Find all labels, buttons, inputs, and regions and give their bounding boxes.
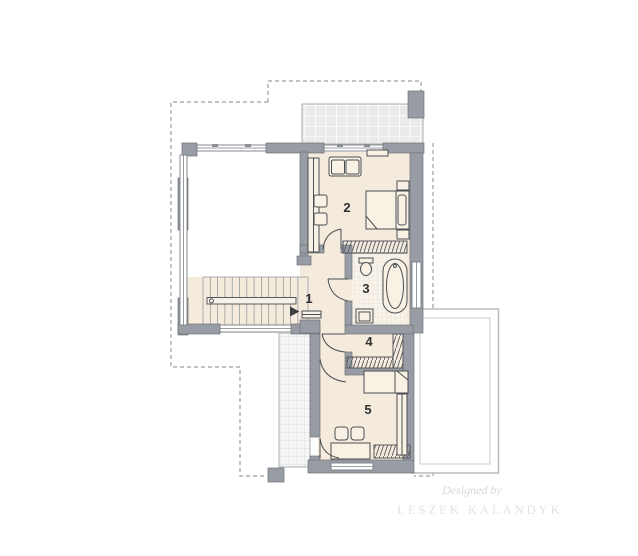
window-bottom-left-wing xyxy=(220,325,291,332)
wall-bottom-left-a xyxy=(178,324,220,334)
sink-icon xyxy=(356,309,373,323)
wardrobe-bedroom5-icon xyxy=(397,394,407,455)
closet-bedroom2 xyxy=(343,241,407,253)
watermark: Designed by LESZEK KALANDYK xyxy=(397,483,562,517)
wall-lower-left-a xyxy=(310,334,320,437)
closet-wardrobe-right xyxy=(393,334,403,368)
window-left-wall xyxy=(180,155,187,325)
wall-void-right-cap xyxy=(297,256,311,265)
wall-top-center xyxy=(266,143,324,153)
nightstand-2-icon xyxy=(397,230,409,239)
window-bedroom5-bottom xyxy=(331,463,373,470)
bathtub-icon xyxy=(383,259,407,313)
wall-corner-top-left xyxy=(182,143,197,156)
sofa-icon xyxy=(329,157,361,176)
chair-1-icon xyxy=(335,427,348,440)
stair-rail xyxy=(207,298,296,305)
closet-wardrobe-bottom xyxy=(347,357,393,368)
floor-plan-page: 1 2 3 4 5 Designed by LESZEK KALANDYK xyxy=(0,0,638,556)
toilet-icon xyxy=(359,258,373,276)
wall-bath-bottom xyxy=(345,325,413,334)
wall-bath-left-a xyxy=(345,253,352,279)
bed-bedroom2-icon xyxy=(366,191,409,229)
terrace-pillar xyxy=(408,91,424,118)
room-label-5: 5 xyxy=(364,402,371,417)
lower-roof-outline xyxy=(412,309,499,473)
window-top-left xyxy=(197,144,266,151)
stool-1-icon xyxy=(314,195,327,207)
room-label-1: 1 xyxy=(305,291,312,306)
radiator-hall-icon xyxy=(302,311,321,318)
stool-2-icon xyxy=(314,213,327,225)
room-label-4: 4 xyxy=(365,334,373,349)
balcony-left xyxy=(279,333,310,467)
chair-2-icon xyxy=(351,427,364,440)
room-label-2: 2 xyxy=(343,200,350,215)
bed-bedroom5-icon xyxy=(364,371,408,393)
console-shelf-icon xyxy=(367,150,388,156)
window-bathroom-right xyxy=(412,262,421,308)
terrace-top xyxy=(302,104,423,144)
dashed-outline-top xyxy=(268,81,421,102)
watermark-script: Designed by xyxy=(441,483,502,497)
nightstand-1-icon xyxy=(397,181,409,190)
wall-top-right xyxy=(383,143,424,153)
room-label-3: 3 xyxy=(362,281,369,296)
wall-bath-left-b xyxy=(345,301,352,325)
balcony-corner-block xyxy=(268,468,284,482)
watermark-name: LESZEK KALANDYK xyxy=(397,503,562,517)
wall-void-right xyxy=(300,152,308,260)
floor-plan-drawing: 1 2 3 4 5 Designed by LESZEK KALANDYK xyxy=(0,0,638,556)
wall-hall-bottom-block xyxy=(300,320,320,333)
desk-icon xyxy=(331,443,370,459)
